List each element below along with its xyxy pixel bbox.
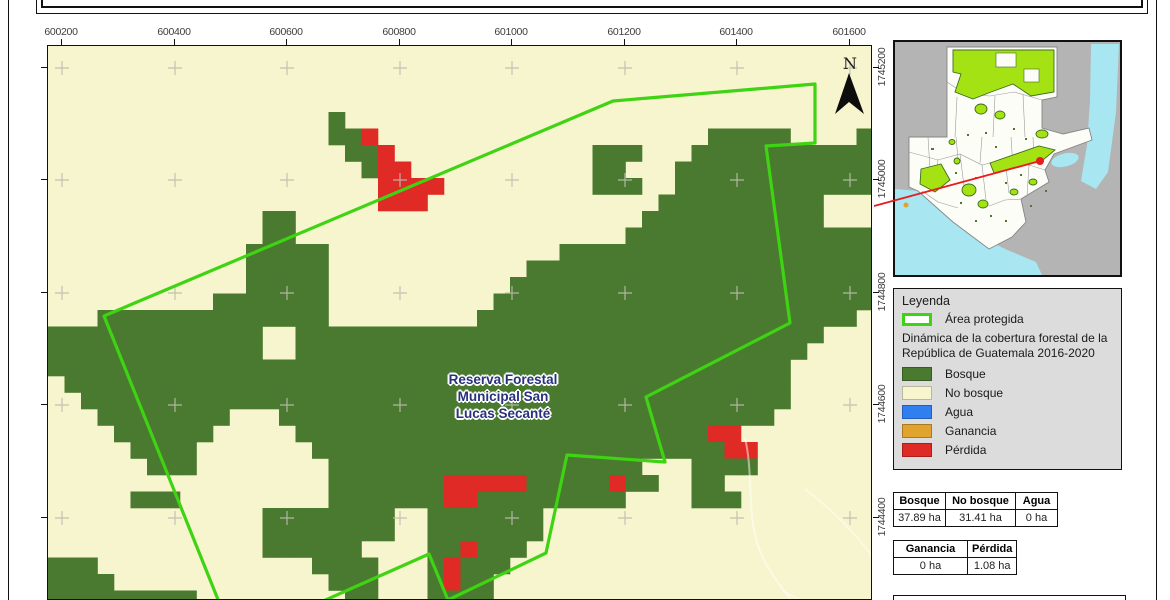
table-value-cell: 1.08 ha: [968, 558, 1017, 575]
table-value-cell: 37.89 ha: [894, 510, 946, 527]
north-arrow-icon: N: [835, 54, 864, 114]
x-tick-label: 601400: [706, 26, 766, 38]
svg-text:N: N: [843, 54, 857, 73]
main-map: N Reserva Forestal Municipal San Lucas S…: [47, 45, 872, 600]
title-box: [41, 0, 1143, 8]
x-tick-label: 600800: [369, 26, 429, 38]
legend-items: BosqueNo bosqueAguaGananciaPérdida: [902, 367, 1113, 457]
legend: Leyenda Área protegida Dinámica de la co…: [893, 288, 1122, 470]
table-value-cell: 0 ha: [1016, 510, 1058, 527]
guatemala-inset: [895, 42, 1120, 275]
legend-item-protected-area: Área protegida: [902, 312, 1113, 326]
bosque-swatch: [902, 367, 932, 381]
legend-dynamics-title: Dinámica de la cobertura forestal de la …: [902, 331, 1113, 360]
table-header-cell: Ganancia: [894, 541, 968, 558]
inset-marker: [904, 203, 909, 208]
protected-area-swatch: [902, 313, 932, 326]
place-label-line1: Reserva Forestal: [388, 371, 618, 388]
table-header-cell: Agua: [1016, 493, 1058, 510]
x-tick-label: 601000: [481, 26, 541, 38]
table-header-cell: Pérdida: [968, 541, 1017, 558]
legend-item-label: Agua: [945, 405, 973, 419]
legend-title: Leyenda: [902, 294, 1113, 308]
x-tick-label: 601600: [819, 26, 879, 38]
legend-item: Ganancia: [902, 424, 1113, 438]
x-tick-label: 600600: [256, 26, 316, 38]
page-border-left: [8, 0, 9, 600]
place-label: Reserva Forestal Municipal San Lucas Sec…: [388, 371, 618, 422]
no_bosque-swatch: [902, 386, 932, 400]
legend-item-label: Pérdida: [945, 443, 986, 457]
area-table-change: GananciaPérdida0 ha1.08 ha: [893, 540, 1017, 575]
table-header-cell: No bosque: [946, 493, 1016, 510]
place-label-line3: Lucas Secanté: [388, 405, 618, 422]
legend-item-label: Ganancia: [945, 424, 996, 438]
bottom-box: [893, 595, 1126, 600]
table-value-cell: 31.41 ha: [946, 510, 1016, 527]
legend-item: No bosque: [902, 386, 1113, 400]
legend-item-label: Bosque: [945, 367, 986, 381]
x-tick-label: 600400: [144, 26, 204, 38]
legend-item: Bosque: [902, 367, 1113, 381]
table-header-cell: Bosque: [894, 493, 946, 510]
table-value-cell: 0 ha: [894, 558, 968, 575]
x-tick-label: 601200: [594, 26, 654, 38]
area-table-cover: BosqueNo bosqueAgua37.89 ha31.41 ha0 ha: [893, 492, 1058, 527]
faint-road-lines: [745, 438, 872, 600]
protected-area-label: Área protegida: [945, 312, 1024, 326]
raster-cells: [48, 112, 872, 600]
page-border-right: [1156, 0, 1157, 600]
legend-item: Agua: [902, 405, 1113, 419]
perdida-swatch: [902, 443, 932, 457]
agua-swatch: [902, 405, 932, 419]
legend-item: Pérdida: [902, 443, 1113, 457]
protected-hole: [1024, 69, 1039, 82]
protected-hole: [996, 53, 1016, 67]
legend-item-label: No bosque: [945, 386, 1003, 400]
inset-locator-map: [893, 40, 1122, 277]
forest-cover-raster: N: [48, 46, 872, 600]
place-label-line2: Municipal San: [388, 388, 618, 405]
ganancia-swatch: [902, 424, 932, 438]
